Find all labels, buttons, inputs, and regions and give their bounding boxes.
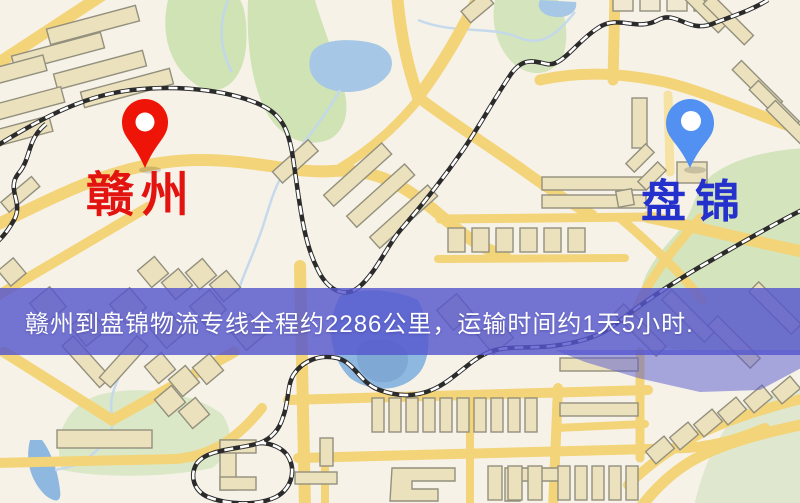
- destination-city-label: 盘锦: [641, 180, 749, 225]
- route-info-banner: 赣州到盘锦物流专线全程约2286公里，运输时间约1天5小时.: [0, 288, 800, 355]
- logistics-route-map: 赣州 盘锦 赣州到盘锦物流专线全程约2286公里，运输时间约1天5小时.: [0, 0, 800, 503]
- origin-city-label: 赣州: [86, 172, 196, 220]
- map-background: [0, 0, 800, 503]
- route-info-text: 赣州到盘锦物流专线全程约2286公里，运输时间约1天5小时.: [25, 304, 694, 339]
